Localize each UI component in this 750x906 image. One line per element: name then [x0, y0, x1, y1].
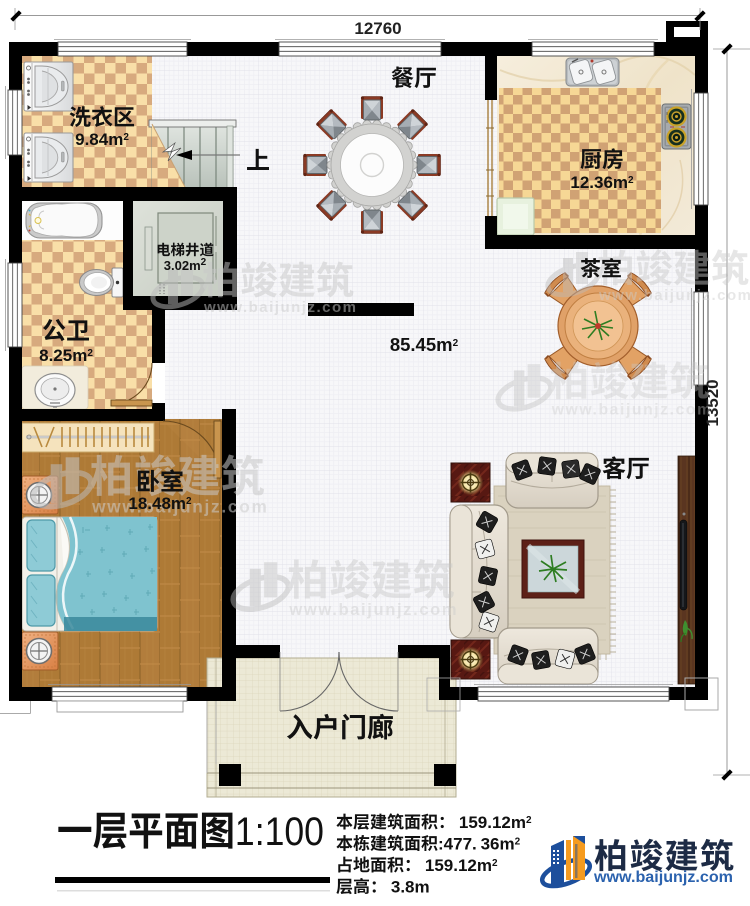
svg-text:客厅: 客厅 — [602, 449, 650, 484]
svg-text:www.baijunjz.com: www.baijunjz.com — [593, 869, 733, 886]
svg-text:3.02m2: 3.02m2 — [164, 257, 207, 273]
svg-text:www.baijunjz.com: www.baijunjz.com — [288, 601, 458, 619]
svg-text:公卫: 公卫 — [42, 311, 90, 346]
svg-text:餐厅: 餐厅 — [391, 59, 437, 93]
svg-text:茶室: 茶室 — [580, 253, 622, 283]
svg-text:柏竣建筑: 柏竣建筑 — [550, 351, 710, 408]
svg-text:12760: 12760 — [354, 19, 401, 38]
svg-text:上: 上 — [246, 141, 270, 176]
svg-text:18.48m2: 18.48m2 — [128, 494, 192, 513]
svg-text:www.baijunjz.com: www.baijunjz.com — [551, 402, 713, 419]
svg-text:洗衣区: 洗衣区 — [69, 100, 135, 132]
svg-text:9.84m2: 9.84m2 — [75, 130, 129, 149]
svg-text:柏竣建筑: 柏竣建筑 — [202, 250, 354, 305]
svg-text:8.25m2: 8.25m2 — [39, 346, 93, 365]
svg-text:12.36m2: 12.36m2 — [570, 173, 634, 192]
svg-text:柏竣建筑: 柏竣建筑 — [287, 548, 454, 608]
svg-text:层高： 3.8m: 层高： 3.8m — [336, 873, 430, 898]
svg-text:卧室: 卧室 — [136, 462, 184, 497]
svg-text:www.baijunjz.com: www.baijunjz.com — [598, 287, 750, 304]
svg-text:一层平面图1:100: 一层平面图1:100 — [57, 799, 324, 857]
svg-text:www.baijunjz.com: www.baijunjz.com — [203, 299, 357, 316]
svg-text:厨房: 厨房 — [580, 142, 624, 174]
svg-text:入户门廊: 入户门廊 — [286, 706, 394, 745]
svg-text:85.45m2: 85.45m2 — [390, 331, 459, 357]
